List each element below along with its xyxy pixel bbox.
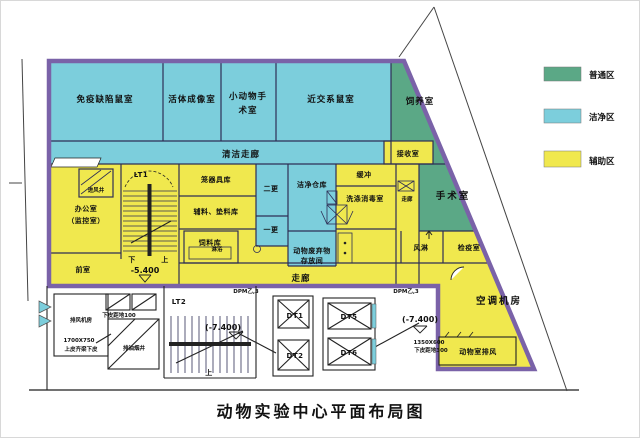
- elevator-shafts: [238, 296, 419, 376]
- room-ac-plant-label: 空调机房: [476, 295, 522, 307]
- room-immune-mouse-label: 免疫缺陷鼠室: [76, 94, 133, 105]
- elevator-dt1-label: DT1: [287, 312, 304, 320]
- elevator-dt6-label: DT6: [341, 349, 358, 357]
- door-tag-right: DPM乙,3: [393, 288, 419, 295]
- legend-label-auxiliary: 辅助区: [589, 156, 615, 167]
- note-shaft: 下皮距地100: [102, 311, 136, 319]
- legend-label-clean: 洁净区: [589, 112, 615, 123]
- floor-plan-drawing: 免疫缺陷鼠室 活体成像室 小动物手 术室 近交系鼠室 饲养室 清洁走廊 接收室 …: [1, 1, 640, 439]
- floor-plan-page: 免疫缺陷鼠室 活体成像室 小动物手 术室 近交系鼠室 饲养室 清洁走廊 接收室 …: [0, 0, 640, 438]
- zone-fills: [49, 61, 534, 369]
- stair-lt1-label: LT1: [134, 171, 148, 179]
- room-first-change-label: 一更: [264, 226, 279, 234]
- room-second-change-label: 二更: [264, 185, 279, 193]
- oil-fume-shaft-label: 排油烟井: [123, 344, 146, 352]
- level-b2-left-label: (-7.400): [205, 323, 241, 332]
- room-aux-bedding-label: 辅料、垫料库: [194, 207, 239, 216]
- legend-label-general: 普通区: [589, 70, 615, 81]
- legend: 普通区 洁净区 辅助区: [544, 67, 615, 167]
- cabinet-dot: [344, 252, 347, 255]
- corridor-exit-banner: [51, 158, 101, 167]
- room-waste-label2: 存放间: [301, 256, 324, 265]
- stair-lt2-label: LT2: [172, 298, 186, 306]
- room-receiving-label: 接收室: [397, 149, 420, 158]
- shower-label: 淋浴: [211, 245, 223, 253]
- room-office-sub-label: （监控室）: [67, 216, 105, 225]
- stair-up-label: 上: [161, 255, 169, 264]
- corridor-right-label: 走廊: [400, 195, 413, 203]
- room-quarantine-label: 检疫室: [458, 243, 481, 252]
- room-clean-warehouse-label: 洁净仓库: [297, 180, 327, 189]
- room-waste-label: 动物废弃物: [293, 246, 331, 255]
- level-b1-label: -5.400: [131, 266, 160, 275]
- room-surgery-label: 手术室: [436, 190, 471, 202]
- room-cage-storage-label: 笼器具库: [200, 175, 231, 184]
- door-tag-left: DPM乙,3: [233, 288, 259, 295]
- room-air-shower-label: 风淋: [414, 243, 429, 252]
- stair-down-label: 下: [128, 256, 136, 264]
- cabinet-dot: [344, 242, 347, 245]
- elevator-door-strip: [372, 304, 376, 328]
- level-b2-right-label: (-7.400): [402, 315, 438, 324]
- room-live-imaging-label: 活体成像室: [168, 94, 216, 105]
- elevator-dt5-label: DT5: [341, 313, 358, 321]
- zone-clean-top: [49, 61, 391, 164]
- elevator-door-strip: [372, 339, 376, 364]
- legend-swatch-clean: [544, 109, 581, 123]
- room-washing-label: 洗涤消毒室: [346, 194, 384, 203]
- stair-up2-label: 上: [205, 368, 213, 377]
- room-inbred-mouse-label: 近交系鼠室: [307, 94, 355, 105]
- room-feed-storage-label: 饲料库: [198, 238, 222, 247]
- exhaust-fan-room-label: 排风机房: [70, 316, 93, 324]
- room-small-animal-surgery-label: 小动物手: [228, 91, 267, 102]
- room-office-label: 办公室: [75, 204, 98, 213]
- page-title: 动物实验中心平面布局图: [216, 402, 425, 421]
- dim-exhaust: 1350X600: [413, 340, 444, 346]
- louver-icon: [39, 301, 51, 327]
- clean-corridor-label: 清洁走廊: [222, 149, 260, 160]
- note-exhaust: 下皮距地300: [414, 346, 448, 354]
- animal-exhaust-label: 动物室排风: [459, 347, 497, 356]
- legend-swatch-general: [544, 67, 581, 81]
- legend-swatch-auxiliary: [544, 151, 581, 167]
- corridor-bottom-label: 走廊: [290, 273, 310, 284]
- room-buffer-label: 缓冲: [356, 170, 372, 179]
- air-intake-shaft-label: 进风井: [88, 186, 105, 194]
- elevator-dt2-label: DT2: [287, 352, 304, 360]
- dim-oil-shaft: 1700X750: [63, 338, 94, 344]
- room-feeding-label: 饲养室: [405, 96, 435, 107]
- note-oil-shaft: 上皮齐梁下皮: [64, 345, 98, 353]
- front-room-label: 前室: [76, 265, 91, 274]
- room-small-animal-surgery-label2: 术室: [237, 105, 257, 116]
